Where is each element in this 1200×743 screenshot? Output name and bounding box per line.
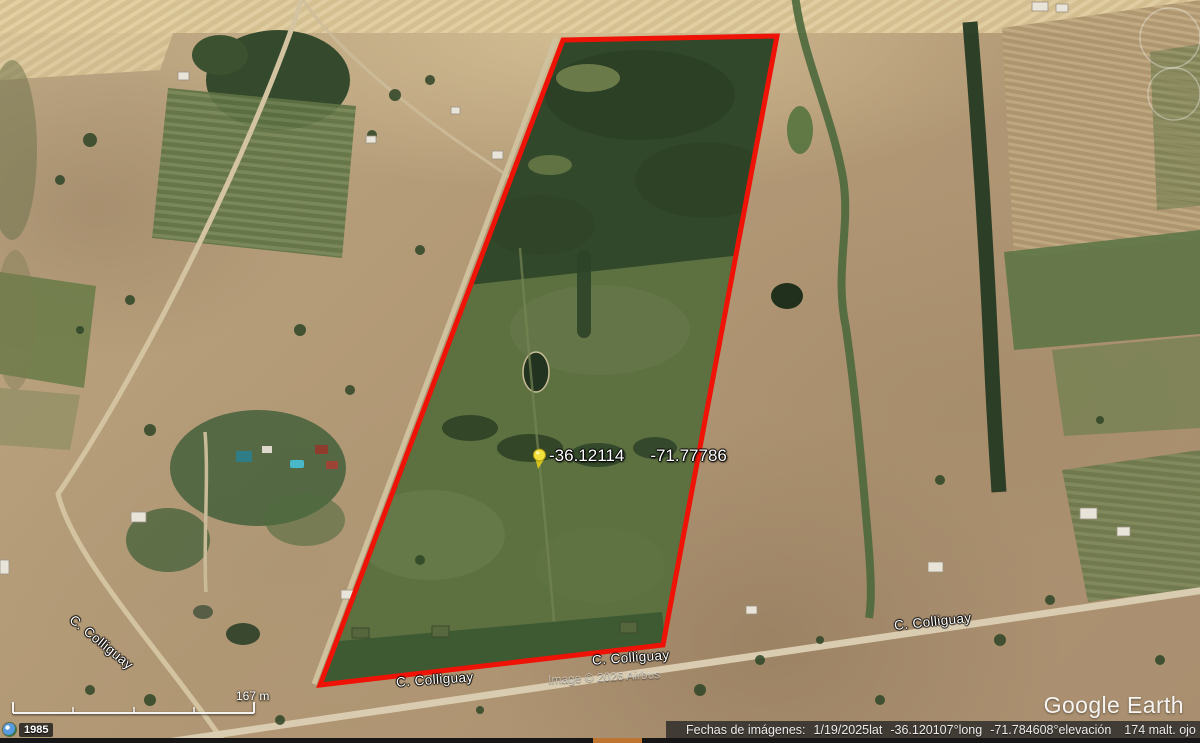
long-label: long bbox=[959, 723, 983, 737]
imagery-date-value: 1/19/2025 bbox=[814, 723, 870, 737]
long-value: -71.784608° bbox=[990, 723, 1058, 737]
imagery-date-label: Fechas de imágenes: bbox=[686, 723, 806, 737]
history-year-badge[interactable]: 1985 bbox=[19, 723, 53, 737]
satellite-imagery bbox=[0, 0, 1200, 743]
elevation-value: 174 m bbox=[1124, 723, 1159, 737]
status-imagery-date: Fechas de imágenes: 1/19/2025 bbox=[686, 723, 869, 737]
placemark-label: -36.12114-71.77786 bbox=[549, 446, 727, 466]
bottom-edge-highlight bbox=[593, 738, 642, 743]
lat-label: lat bbox=[869, 723, 882, 737]
bottom-edge-bar bbox=[0, 738, 1200, 743]
google-earth-map-view[interactable]: -36.12114-71.77786 C. Colliguay C. Colli… bbox=[0, 0, 1200, 743]
lat-value: -36.120107° bbox=[890, 723, 958, 737]
eye-alt-label: alt. ojo bbox=[1159, 723, 1196, 737]
status-lat: lat -36.120107° bbox=[869, 723, 958, 737]
status-bar: Fechas de imágenes: 1/19/2025 lat -36.12… bbox=[666, 721, 1200, 738]
placemark-lat: -36.12114 bbox=[549, 446, 624, 465]
elevation-label: elevación bbox=[1058, 723, 1111, 737]
placemark-lon: -71.77786 bbox=[650, 446, 727, 465]
parcel-interior bbox=[300, 20, 800, 700]
history-clock-icon[interactable] bbox=[3, 723, 16, 736]
swimming-pool bbox=[290, 460, 304, 468]
status-eye-altitude: alt. ojo 914 m bbox=[1159, 723, 1200, 737]
scale-bar-label: 167 m bbox=[236, 689, 269, 703]
status-elevation: elevación 174 m bbox=[1058, 723, 1159, 737]
status-long: long -71.784608° bbox=[959, 723, 1059, 737]
google-earth-watermark: Google Earth bbox=[1044, 692, 1184, 719]
scale-bar bbox=[13, 702, 254, 713]
